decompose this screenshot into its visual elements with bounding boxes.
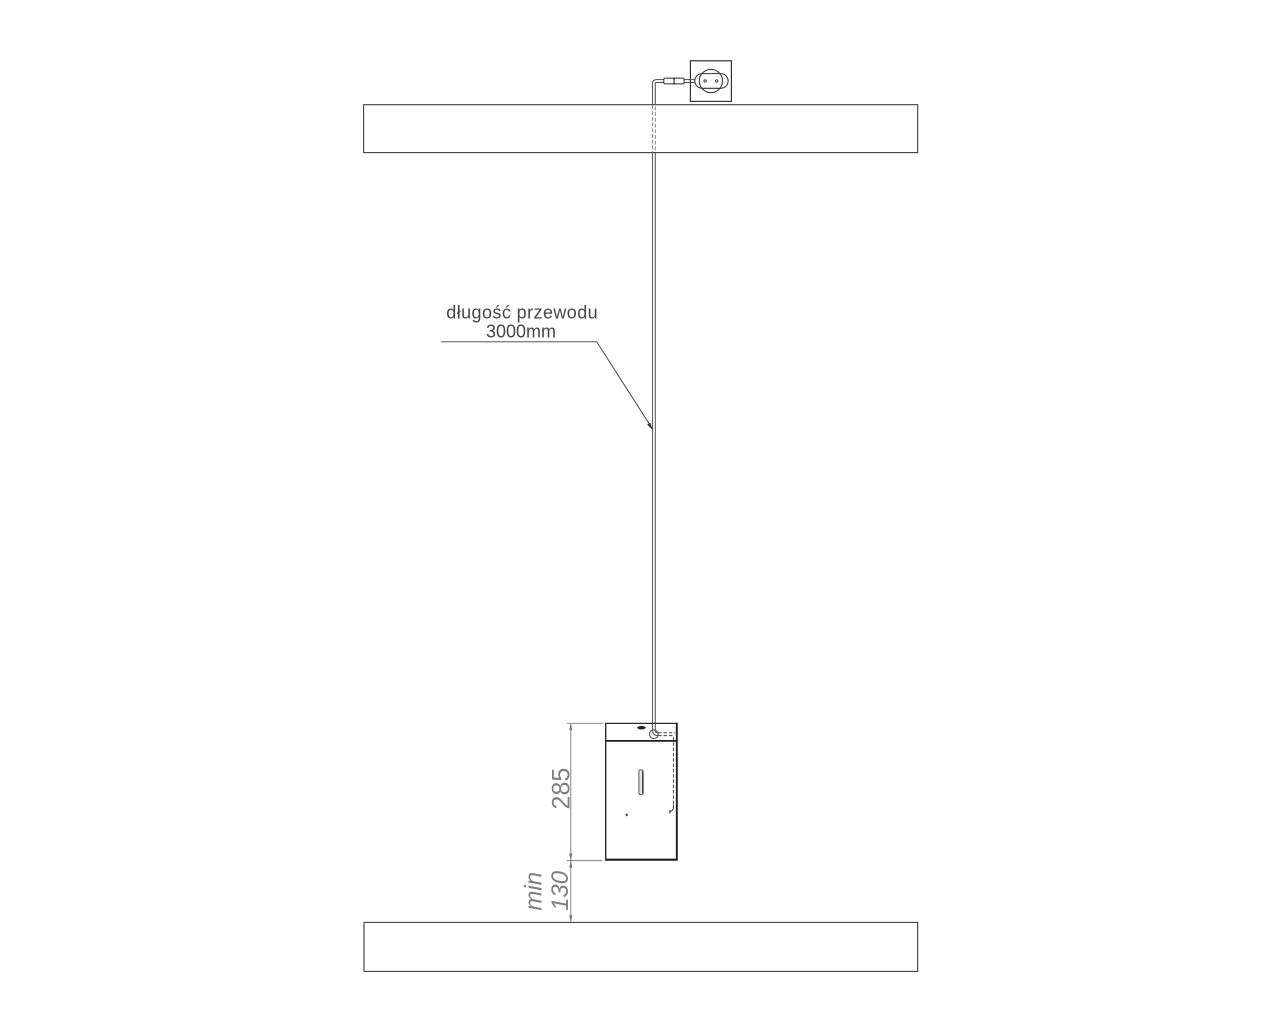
svg-text:3000mm: 3000mm (486, 322, 556, 342)
svg-text:130: 130 (547, 870, 574, 911)
svg-text:285: 285 (547, 768, 575, 810)
svg-text:długość przewodu: długość przewodu (446, 303, 598, 323)
svg-text:min: min (521, 872, 548, 911)
